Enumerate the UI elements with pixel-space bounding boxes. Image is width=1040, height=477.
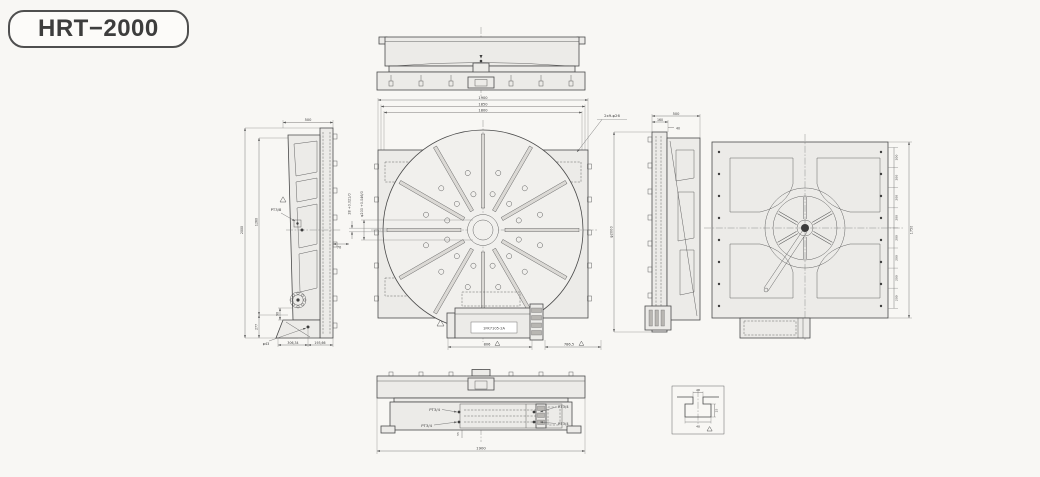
- model-badge: HRT−2000: [8, 10, 189, 48]
- warning-triangle-icon: [707, 427, 712, 432]
- back-plate: [712, 142, 888, 318]
- housing-left: [276, 135, 320, 338]
- pitch-dim: 200: [895, 275, 899, 281]
- model-label: HRT−2000: [38, 15, 159, 42]
- center-bore: [473, 220, 493, 240]
- keyslot-dim: 28 +0.021/0: [348, 193, 352, 214]
- left-width-dim: 500: [305, 118, 313, 122]
- bolt-dia-label: φ43: [263, 342, 270, 346]
- port-bottom-left-label: PT3/4: [421, 423, 432, 428]
- right-width-dim: 500: [673, 112, 681, 116]
- bore-dim: φ200 +0.046/0: [360, 191, 364, 217]
- warning-triangle-icon: [280, 197, 286, 202]
- pitch-dim: 200: [895, 195, 899, 201]
- pitch-dim: 200: [895, 175, 899, 181]
- pitch-dim: 200: [895, 215, 899, 221]
- right-side-view: 500 160 40 φ2000: [608, 108, 712, 345]
- detail-top-dim: 28: [696, 388, 700, 392]
- left-port-label: PT3/8: [271, 207, 282, 212]
- pitch-dim: 200: [895, 155, 899, 161]
- port-bottom-right-label: PT3/4: [558, 421, 569, 426]
- right-dim-b: 40: [676, 127, 680, 131]
- pitch-dim: 200: [895, 235, 899, 241]
- t-slot-detail-view: 28 25 48: [665, 382, 732, 440]
- front-width-outer-dim: 1900: [478, 96, 488, 100]
- small-dim: 55: [456, 432, 460, 436]
- back-height-dim: 1750: [910, 226, 914, 235]
- center-clamp: [473, 63, 489, 73]
- base-bottom: [381, 398, 581, 433]
- right-dim-a: 160: [657, 118, 663, 122]
- back-view: 200 200 200 200 200 200 200 200 1750: [700, 130, 930, 345]
- bottom-view: PT3/4 PT3/4 PT3/4 PT3/4 55 1900: [368, 368, 596, 465]
- brake-unit: [645, 306, 671, 330]
- motor-length-dim: 806: [484, 342, 492, 346]
- detail-side-dim: 25: [715, 409, 719, 413]
- top-view: [368, 25, 596, 100]
- table-plate-bottom: [377, 370, 585, 399]
- foot-dim-a: 306,34: [287, 341, 298, 345]
- bottom-overall-dim: 1900: [476, 446, 486, 451]
- back-bottom-pocket: [740, 318, 810, 338]
- pitch-dim: 200: [895, 255, 899, 261]
- foot-dim-b: 193,66: [314, 341, 325, 345]
- pitch-dim: 200: [895, 295, 899, 301]
- detail-bottom-dim: 48: [696, 425, 700, 429]
- sprocket-detail: [290, 292, 306, 308]
- port-top-right-label: PT3/4: [558, 404, 569, 409]
- front-width-inner-dim: 1800: [478, 108, 488, 112]
- front-view: 1900 1850 1800 2x9-φ26: [325, 92, 635, 364]
- left-overall-height-dim: 2000: [240, 226, 244, 234]
- table-plate-right: [648, 132, 667, 332]
- left-lower-height-dim: 277: [255, 324, 259, 330]
- base-top: [377, 72, 585, 90]
- left-upper-height-dim: 1260: [255, 218, 259, 226]
- port-top-left-label: PT3/4: [429, 407, 440, 412]
- motor-label: 1FK7105-2A: [483, 327, 505, 331]
- housing-right: [667, 138, 700, 320]
- right-length-dim: 786,5: [564, 342, 574, 346]
- offset-dim: 70: [337, 246, 342, 250]
- table-dia-dim: φ2000: [610, 226, 614, 238]
- table-body-top: [379, 37, 585, 73]
- front-width-mid-dim: 1850: [478, 102, 488, 106]
- left-step-dim: 90: [276, 312, 280, 316]
- pitch-dim-chain: 200 200 200 200 200 200 200 200: [888, 148, 899, 309]
- foot-bolt: [307, 326, 310, 329]
